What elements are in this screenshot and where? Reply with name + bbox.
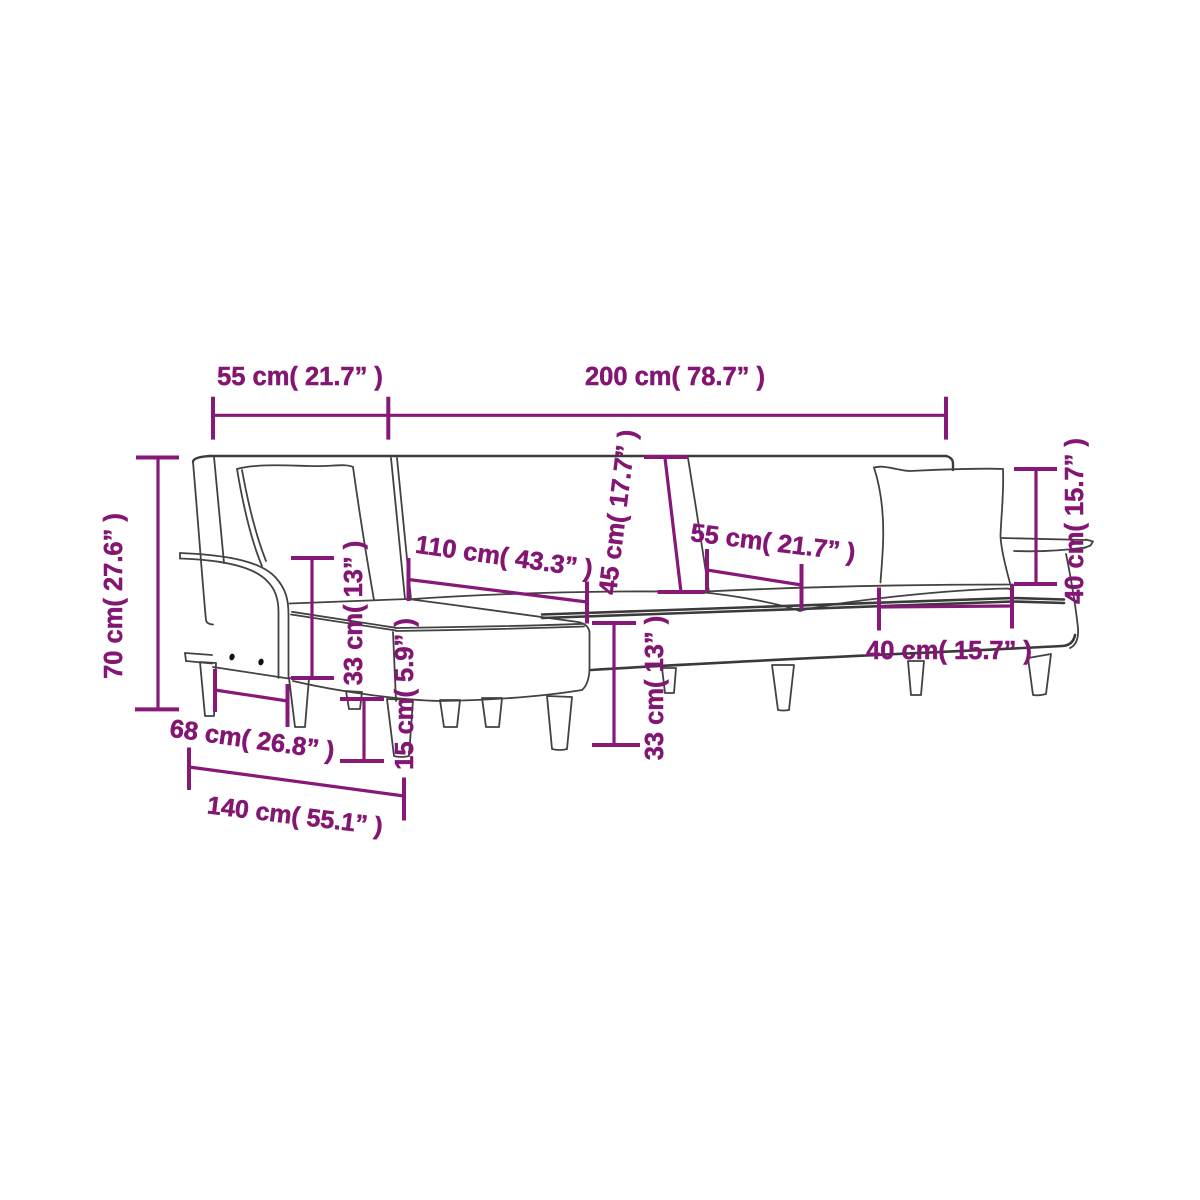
svg-text:110 cm( 43.3” ): 110 cm( 43.3” ) xyxy=(414,531,595,584)
svg-text:33 cm( 13” ): 33 cm( 13” ) xyxy=(641,616,669,761)
svg-text:55 cm( 21.7” ): 55 cm( 21.7” ) xyxy=(217,363,383,391)
svg-text:200 cm( 78.7” ): 200 cm( 78.7” ) xyxy=(585,363,765,391)
svg-text:140 cm( 55.1” ): 140 cm( 55.1” ) xyxy=(206,791,385,840)
svg-text:55 cm( 21.7” ): 55 cm( 21.7” ) xyxy=(689,519,857,567)
svg-text:68 cm( 26.8” ): 68 cm( 26.8” ) xyxy=(168,715,336,766)
svg-text:33 cm( 13” ): 33 cm( 13” ) xyxy=(340,541,368,686)
svg-text:15 cm( 5.9” ): 15 cm( 5.9” ) xyxy=(391,618,419,770)
svg-text:40 cm( 15.7” ): 40 cm( 15.7” ) xyxy=(866,637,1032,665)
svg-text:40 cm( 15.7” ): 40 cm( 15.7” ) xyxy=(1061,438,1089,604)
svg-text:70 cm( 27.6” ): 70 cm( 27.6” ) xyxy=(100,513,128,679)
svg-text:45 cm( 17.7” ): 45 cm( 17.7” ) xyxy=(594,428,642,596)
